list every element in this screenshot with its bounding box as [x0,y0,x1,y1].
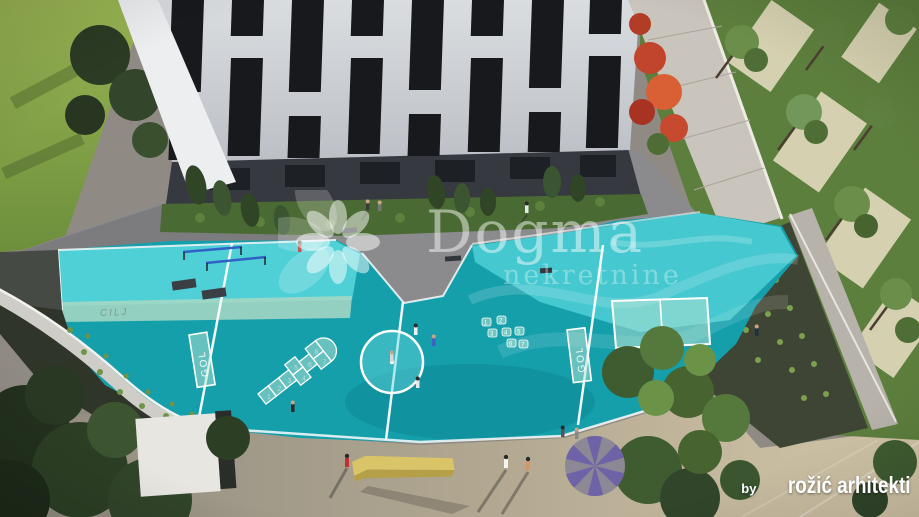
architectural-render-image: CILJ GOL GOL 1 2 3 4 5 6 7 [0,0,919,517]
credit-studio-name: rožić arhitekti [788,472,911,499]
render-scene: CILJ GOL GOL 1 2 3 4 5 6 7 [0,0,919,517]
credit-prefix: by [741,481,756,496]
vignette [0,0,919,517]
credit-line: by rožić arhitekti [741,472,911,499]
